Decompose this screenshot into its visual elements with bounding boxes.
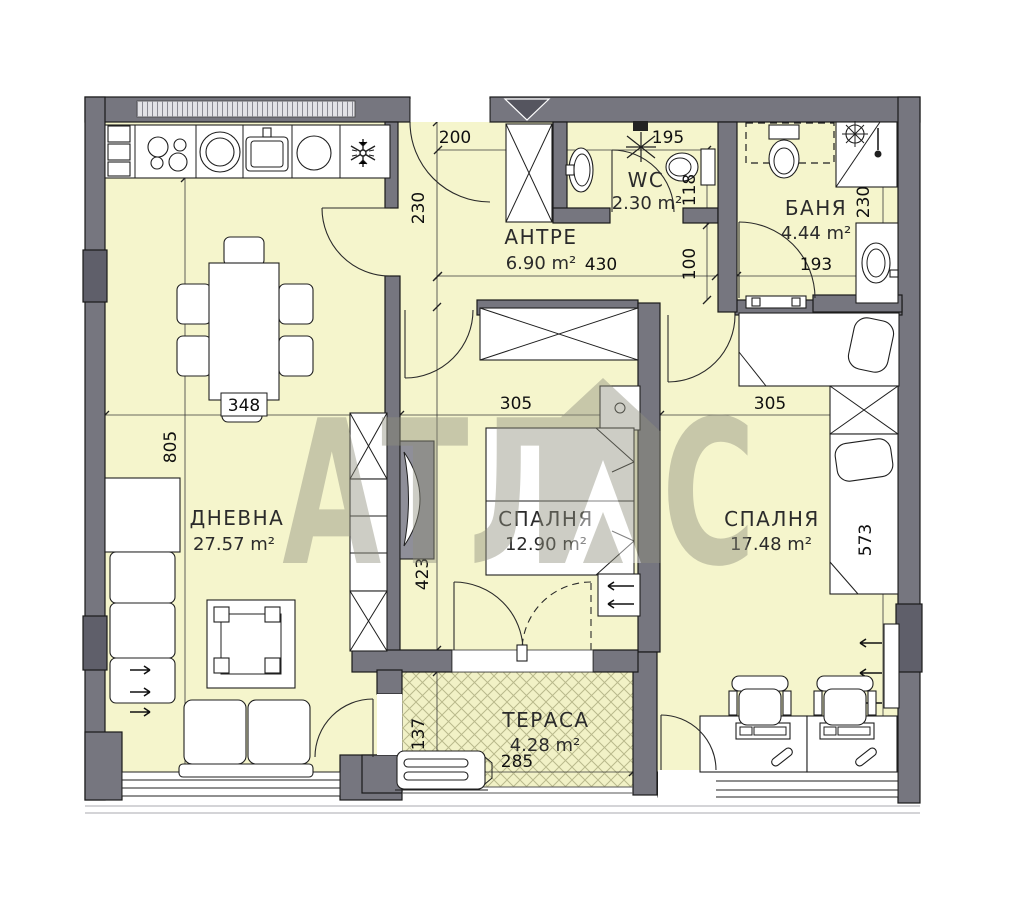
- kitchen-counter: [105, 125, 390, 178]
- living-terrace-door-opening: [377, 694, 402, 755]
- dim-label: 805: [161, 431, 181, 463]
- pier-right: [896, 604, 922, 672]
- room-area-wc: 2.30 m²: [612, 193, 683, 214]
- wall-right: [898, 97, 920, 803]
- dim-label: 430: [585, 255, 617, 275]
- bedroom1-radiator: [598, 574, 640, 616]
- watermark-text-right: С: [662, 377, 756, 610]
- wall-wc-bottom: [553, 208, 610, 223]
- room-area-living: 27.57 m²: [193, 534, 275, 555]
- dining-chair: [279, 284, 313, 324]
- wall-terrace-right: [633, 652, 657, 795]
- bedroom2-bed-top: [739, 313, 899, 386]
- watermark: АТЛ С: [282, 377, 755, 610]
- round-sink-icon: [200, 132, 240, 172]
- dim-label: 200: [439, 128, 471, 148]
- wall-wc-bottom-east: [683, 208, 718, 223]
- room-name-wc: WC: [628, 168, 665, 192]
- dining-chair: [224, 237, 264, 266]
- dim-label: 118: [680, 174, 700, 206]
- dim-label: 193: [800, 255, 832, 275]
- wall-left: [85, 97, 105, 800]
- sofa-left: [110, 552, 175, 716]
- pier-left-upper: [83, 250, 107, 302]
- bath-washbasin-icon: [856, 223, 898, 303]
- bath-toilet-icon: [769, 125, 799, 178]
- dining-table: [209, 263, 279, 400]
- pier-left-lower: [83, 616, 107, 670]
- wall-bedroom1-bottom-west: [352, 650, 452, 672]
- dining-chair: [177, 336, 211, 376]
- bedroom2-bed-right: [830, 434, 898, 594]
- ac-unit: [395, 751, 492, 790]
- wall-living-terrace-upper: [377, 670, 402, 694]
- dim-label: 100: [680, 248, 700, 280]
- room-name-terrace: ТЕРАСА: [501, 708, 589, 732]
- corner-bottom-left: [85, 732, 122, 800]
- room-name-bath: БАНЯ: [785, 196, 847, 220]
- sofa-corner-unit: [105, 478, 180, 552]
- dining-chair: [177, 284, 211, 324]
- dim-label: 195: [652, 128, 684, 148]
- entrance-opening: [410, 99, 490, 122]
- room-area-bath: 4.44 m²: [781, 223, 852, 244]
- wall-wc-bath: [718, 122, 737, 312]
- bedroom2-desks: [700, 716, 897, 772]
- sofa-bottom: [179, 700, 313, 777]
- coffee-table: [207, 600, 295, 688]
- second-bowl-icon: [297, 136, 331, 170]
- svg-text:348: 348: [228, 396, 260, 416]
- floor-plan-drawing: 200 195 230 430 193 118 100 230 348 305 …: [0, 0, 1024, 906]
- bedroom1-wardrobe: [480, 308, 638, 360]
- dim-label: 305: [754, 394, 786, 414]
- wall-bedroom1-bottom-east: [593, 650, 638, 672]
- room-name-hall: АНТРЕ: [504, 225, 577, 249]
- wall-wc-west: [553, 122, 567, 212]
- shower-icon: [836, 121, 897, 187]
- dim-label: 137: [409, 718, 429, 750]
- floor-plan-page: 200 195 230 430 193 118 100 230 348 305 …: [0, 0, 1024, 906]
- dim-label: 230: [409, 192, 429, 224]
- room-name-living: ДНЕВНА: [190, 506, 285, 530]
- wall-living-terrace-lower: [362, 755, 402, 793]
- dining-chair: [279, 336, 313, 376]
- watermark-text-left: АТЛ: [282, 377, 575, 610]
- room-area-hall: 6.90 m²: [506, 253, 577, 274]
- hall-wardrobe: [506, 124, 552, 222]
- room-area-terrace: 4.28 m²: [510, 735, 581, 756]
- dim-label: 230: [854, 186, 874, 218]
- dim-label: 573: [856, 524, 876, 556]
- bedroom2-terrace-door-opening: [658, 770, 716, 798]
- wall-top-right: [490, 97, 920, 122]
- dim-label-boxed: 348: [221, 393, 267, 416]
- bedroom2-wardrobe: [830, 386, 898, 434]
